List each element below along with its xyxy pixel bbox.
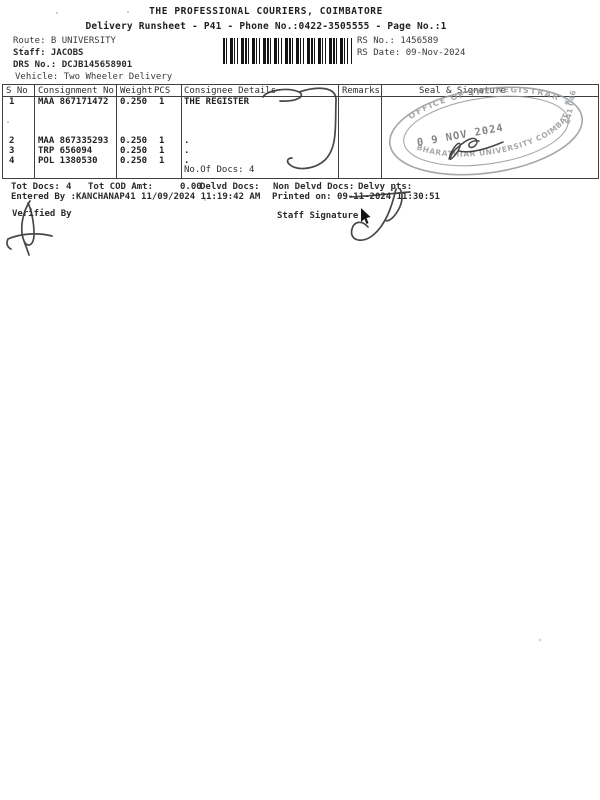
mouse-cursor bbox=[361, 208, 371, 224]
cell-consignee: . bbox=[184, 146, 189, 156]
rs-date-value: 09-Nov-2024 bbox=[406, 48, 466, 58]
cell-consignment: TRP 656094 bbox=[38, 146, 92, 156]
cell-pcs: 1 bbox=[159, 136, 164, 146]
document-title: THE PROFESSIONAL COURIERS, COIMBATORE bbox=[0, 6, 532, 17]
route-label: Route: bbox=[13, 36, 46, 46]
staff-label: Staff: bbox=[13, 48, 46, 58]
cell-sno: 4 bbox=[9, 156, 14, 166]
table-divider bbox=[381, 85, 382, 178]
tot-cod-value: 0.00 bbox=[180, 182, 202, 192]
drs-value: DCJB145658901 bbox=[62, 60, 132, 70]
vehicle-value: Two Wheeler Delivery bbox=[64, 72, 172, 82]
cell-consignment: MAA 867171472 bbox=[38, 97, 108, 107]
route-value: B UNIVERSITY bbox=[51, 36, 116, 46]
drs-label: DRS No.: bbox=[13, 60, 56, 70]
printed-on-text: Printed on: 09-11-2024 11:30:51 bbox=[272, 192, 440, 202]
document-subtitle: Delivery Runsheet - P41 - Phone No.:0422… bbox=[0, 21, 532, 32]
tot-cod-label: Tot COD Amt: bbox=[88, 182, 153, 192]
rs-date-label: RS Date: bbox=[357, 48, 400, 58]
col-header-consignee: Consignee Details bbox=[184, 86, 276, 96]
col-header-consignment: Consignment No bbox=[38, 86, 114, 96]
cell-sno: 2 bbox=[9, 136, 14, 146]
table-divider bbox=[181, 85, 182, 178]
table-divider bbox=[34, 85, 35, 178]
staff-line: Staff:JACOBS bbox=[13, 48, 83, 58]
cell-weight: 0.250 bbox=[120, 136, 147, 146]
rs-date-line: RS Date:09-Nov-2024 bbox=[357, 48, 465, 58]
cell-sno: 1 bbox=[9, 97, 14, 107]
cell-consignment: MAA 867335293 bbox=[38, 136, 108, 146]
cell-pcs: 1 bbox=[159, 156, 164, 166]
runsheet-table: S No Consignment No Weight PCS Consignee… bbox=[2, 84, 599, 179]
entered-by-text: Entered By :KANCHANAP41 11/09/2024 11:19… bbox=[11, 192, 260, 202]
cell-consignee: THE REGISTER bbox=[184, 97, 249, 107]
cell-weight: 0.250 bbox=[120, 146, 147, 156]
cell-pcs: 1 bbox=[159, 97, 164, 107]
verified-by-label: Verified By bbox=[12, 209, 72, 219]
cell-weight: 0.250 bbox=[120, 156, 147, 166]
col-header-sno: S No bbox=[6, 86, 28, 96]
col-header-pcs: PCS bbox=[154, 86, 170, 96]
rs-no-value: 1456589 bbox=[400, 36, 438, 46]
col-header-seal: Seal & Signature bbox=[419, 86, 506, 96]
cell-sno: 3 bbox=[9, 146, 14, 156]
tot-docs-value: 4 bbox=[66, 182, 71, 192]
non-delvd-docs-label: Non Delvd Docs: bbox=[273, 182, 354, 192]
cell-weight: 0.250 bbox=[120, 97, 147, 107]
route-line: Route:B UNIVERSITY bbox=[13, 36, 116, 46]
col-header-remarks: Remarks bbox=[342, 86, 380, 96]
delvd-docs-label: Delvd Docs: bbox=[200, 182, 260, 192]
delivery-runsheet-document: THE PROFESSIONAL COURIERS, COIMBATORE De… bbox=[0, 0, 600, 800]
barcode bbox=[223, 38, 352, 64]
staff-value: JACOBS bbox=[51, 48, 84, 58]
drs-line: DRS No.:DCJB145658901 bbox=[13, 60, 132, 70]
rs-no-line: RS No.:1456589 bbox=[357, 36, 438, 46]
cell-consignment: POL 1380530 bbox=[38, 156, 98, 166]
col-header-weight: Weight bbox=[120, 86, 153, 96]
vehicle-line: Vehicle:Two Wheeler Delivery bbox=[15, 72, 172, 82]
table-divider bbox=[338, 85, 339, 178]
cell-pcs: 1 bbox=[159, 146, 164, 156]
tot-docs-label: Tot Docs: bbox=[11, 182, 60, 192]
cell-consignee: . bbox=[184, 136, 189, 146]
delvy-pts-label: Delvy pts: bbox=[358, 182, 412, 192]
rs-no-label: RS No.: bbox=[357, 36, 395, 46]
table-divider bbox=[116, 85, 117, 178]
vehicle-label: Vehicle: bbox=[15, 72, 58, 82]
staff-signature-label: Staff Signature bbox=[277, 211, 358, 221]
docs-count-note: No.Of Docs: 4 bbox=[184, 165, 254, 175]
